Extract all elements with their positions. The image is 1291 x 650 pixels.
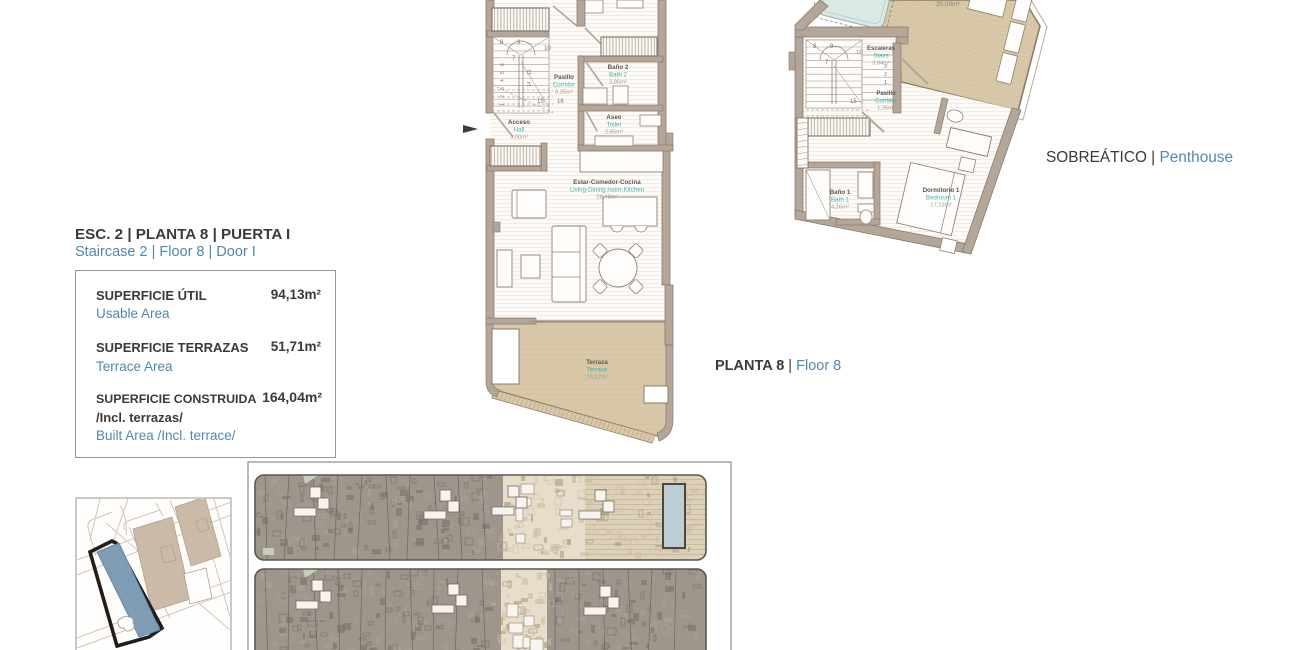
svg-text:Bath 1: Bath 1: [831, 196, 849, 203]
svg-text:17,12m²: 17,12m²: [930, 203, 951, 209]
svg-text:Terrace: Terrace: [587, 366, 608, 373]
svg-text:8,35m²: 8,35m²: [555, 90, 573, 96]
svg-text:Baño 2: Baño 2: [608, 64, 629, 71]
svg-text:Corridor: Corridor: [553, 81, 575, 88]
svg-text:6: 6: [500, 63, 506, 66]
svg-text:Pasillo: Pasillo: [876, 91, 896, 97]
svg-text:Aseo: Aseo: [606, 114, 621, 121]
svg-text:Dormitorio 1: Dormitorio 1: [923, 187, 960, 194]
svg-text:3,00m²: 3,00m²: [510, 135, 528, 141]
svg-text:2: 2: [884, 72, 887, 78]
svg-text:Stairs: Stairs: [873, 53, 888, 59]
svg-text:35,00m²: 35,00m²: [936, 1, 959, 8]
svg-text:Pasillo: Pasillo: [554, 74, 574, 81]
svg-text:Estar-Comedor-Cocina: Estar-Comedor-Cocina: [573, 179, 641, 186]
svg-text:3: 3: [500, 87, 506, 90]
svg-text:14: 14: [527, 81, 533, 87]
svg-text:Bedroom 1: Bedroom 1: [926, 194, 957, 201]
svg-text:1: 1: [500, 103, 506, 106]
svg-text:4,16m²: 4,16m²: [831, 205, 849, 211]
svg-text:10: 10: [544, 46, 551, 52]
svg-text:Escaleras: Escaleras: [867, 46, 896, 52]
svg-text:Living-Dining room-Kitchen: Living-Dining room-Kitchen: [570, 186, 645, 193]
svg-text:2: 2: [500, 95, 506, 98]
svg-text:Terraza: Terraza: [586, 359, 608, 366]
svg-text:Corridor: Corridor: [875, 98, 897, 104]
svg-text:1: 1: [884, 80, 887, 86]
svg-text:13: 13: [527, 69, 533, 75]
svg-text:5: 5: [500, 71, 506, 74]
svg-text:Toilet: Toilet: [607, 121, 622, 128]
svg-text:Baño 1: Baño 1: [830, 189, 851, 196]
svg-text:Hall: Hall: [514, 126, 525, 133]
svg-text:16: 16: [557, 99, 564, 105]
svg-text:3,86m²: 3,86m²: [609, 80, 627, 86]
svg-text:3,84m²: 3,84m²: [872, 61, 890, 67]
svg-text:Bath 2: Bath 2: [609, 71, 627, 78]
svg-text:16,12m²: 16,12m²: [586, 375, 607, 381]
svg-text:Acceso: Acceso: [508, 119, 530, 126]
svg-text:1,26m²: 1,26m²: [877, 106, 895, 112]
svg-text:4: 4: [500, 79, 506, 82]
svg-text:28,49m²: 28,49m²: [596, 195, 617, 201]
svg-text:15: 15: [850, 99, 857, 105]
svg-text:2,85m²: 2,85m²: [605, 130, 623, 136]
